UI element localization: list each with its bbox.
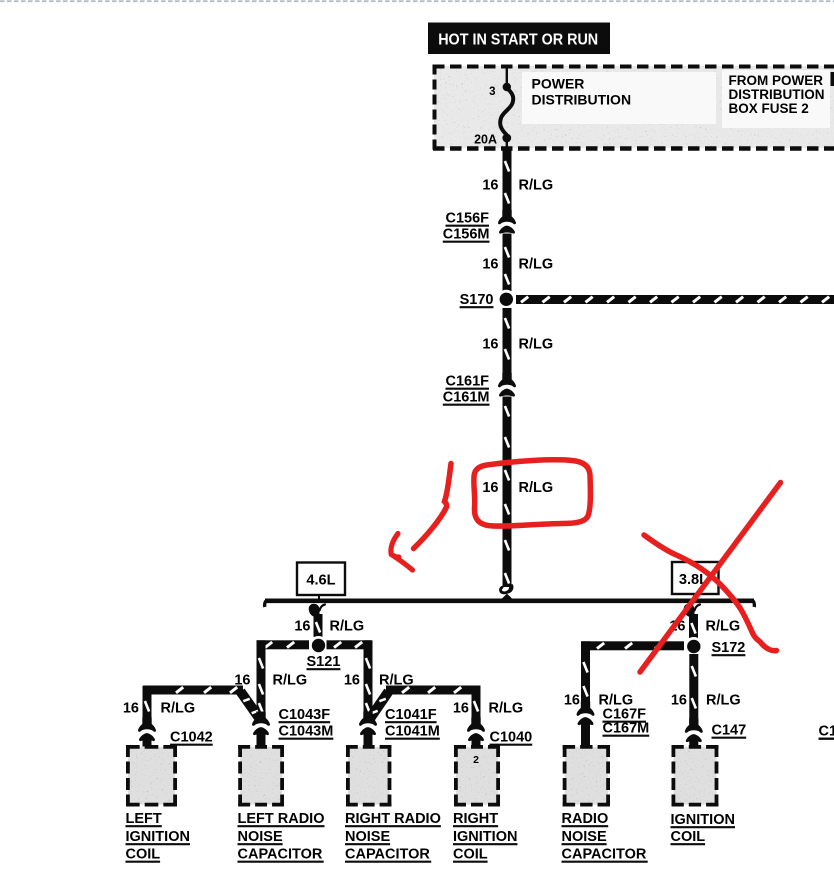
svg-text:DISTRIBUTION: DISTRIBUTION <box>729 87 825 102</box>
svg-text:CAPACITOR: CAPACITOR <box>345 847 430 863</box>
svg-text:16: 16 <box>482 337 498 353</box>
svg-text:CAPACITOR: CAPACITOR <box>562 847 647 863</box>
svg-text:C156M: C156M <box>443 227 490 243</box>
svg-text:NOISE: NOISE <box>562 829 607 845</box>
svg-text:4.6L: 4.6L <box>306 573 335 589</box>
svg-text:16: 16 <box>294 619 310 635</box>
svg-text:BOX FUSE 2: BOX FUSE 2 <box>729 101 809 116</box>
svg-text:NOISE: NOISE <box>238 829 283 845</box>
svg-text:16: 16 <box>482 257 498 273</box>
svg-text:R/LG: R/LG <box>706 693 741 709</box>
svg-text:R/LG: R/LG <box>489 701 524 717</box>
svg-text:16: 16 <box>482 178 498 194</box>
svg-text:R/LG: R/LG <box>519 178 554 194</box>
svg-text:FROM POWER: FROM POWER <box>729 73 824 88</box>
svg-text:RIGHT: RIGHT <box>453 811 498 827</box>
svg-text:C161M: C161M <box>443 390 490 406</box>
svg-text:C1: C1 <box>819 724 834 740</box>
svg-text:S121: S121 <box>307 654 341 670</box>
svg-text:COIL: COIL <box>671 829 706 845</box>
svg-text:C167M: C167M <box>603 721 650 737</box>
svg-text:2: 2 <box>473 754 479 766</box>
svg-text:C1041F: C1041F <box>385 707 437 723</box>
svg-text:C1040: C1040 <box>490 730 533 746</box>
svg-text:16: 16 <box>482 480 498 496</box>
svg-text:R/LG: R/LG <box>330 619 365 635</box>
svg-text:HOT IN START OR RUN: HOT IN START OR RUN <box>438 32 598 49</box>
svg-text:IGNITION: IGNITION <box>671 812 735 828</box>
svg-text:S170: S170 <box>460 292 494 308</box>
svg-text:S172: S172 <box>712 640 746 656</box>
svg-text:3: 3 <box>489 86 495 98</box>
svg-text:C161F: C161F <box>445 374 489 390</box>
svg-text:16: 16 <box>671 693 687 709</box>
svg-text:R/LG: R/LG <box>706 619 741 635</box>
svg-text:20A: 20A <box>474 133 497 147</box>
svg-text:C1041M: C1041M <box>385 724 440 740</box>
svg-text:R/LG: R/LG <box>519 480 554 496</box>
svg-text:CAPACITOR: CAPACITOR <box>238 847 323 863</box>
svg-text:R/LG: R/LG <box>519 257 554 273</box>
svg-text:C147: C147 <box>712 723 747 739</box>
svg-text:LEFT RADIO: LEFT RADIO <box>238 811 325 827</box>
svg-text:R/LG: R/LG <box>519 337 554 353</box>
svg-text:RIGHT RADIO: RIGHT RADIO <box>345 811 441 827</box>
svg-text:R/LG: R/LG <box>273 673 308 689</box>
svg-text:RADIO: RADIO <box>562 811 609 827</box>
svg-text:16: 16 <box>344 673 360 689</box>
svg-text:LEFT: LEFT <box>126 811 162 827</box>
svg-text:16: 16 <box>453 701 469 717</box>
svg-text:POWER: POWER <box>532 76 585 92</box>
svg-text:COIL: COIL <box>453 847 488 863</box>
svg-text:16: 16 <box>564 693 580 709</box>
svg-text:C156F: C156F <box>445 211 489 227</box>
svg-text:IGNITION: IGNITION <box>453 829 517 845</box>
svg-text:16: 16 <box>123 701 139 717</box>
svg-text:DISTRIBUTION: DISTRIBUTION <box>532 92 632 108</box>
svg-text:COIL: COIL <box>126 847 161 863</box>
svg-text:R/LG: R/LG <box>161 701 196 717</box>
svg-text:C1042: C1042 <box>170 730 213 746</box>
svg-text:NOISE: NOISE <box>345 829 390 845</box>
svg-text:IGNITION: IGNITION <box>126 829 190 845</box>
svg-text:C1043M: C1043M <box>279 724 334 740</box>
svg-text:C1043F: C1043F <box>279 707 331 723</box>
